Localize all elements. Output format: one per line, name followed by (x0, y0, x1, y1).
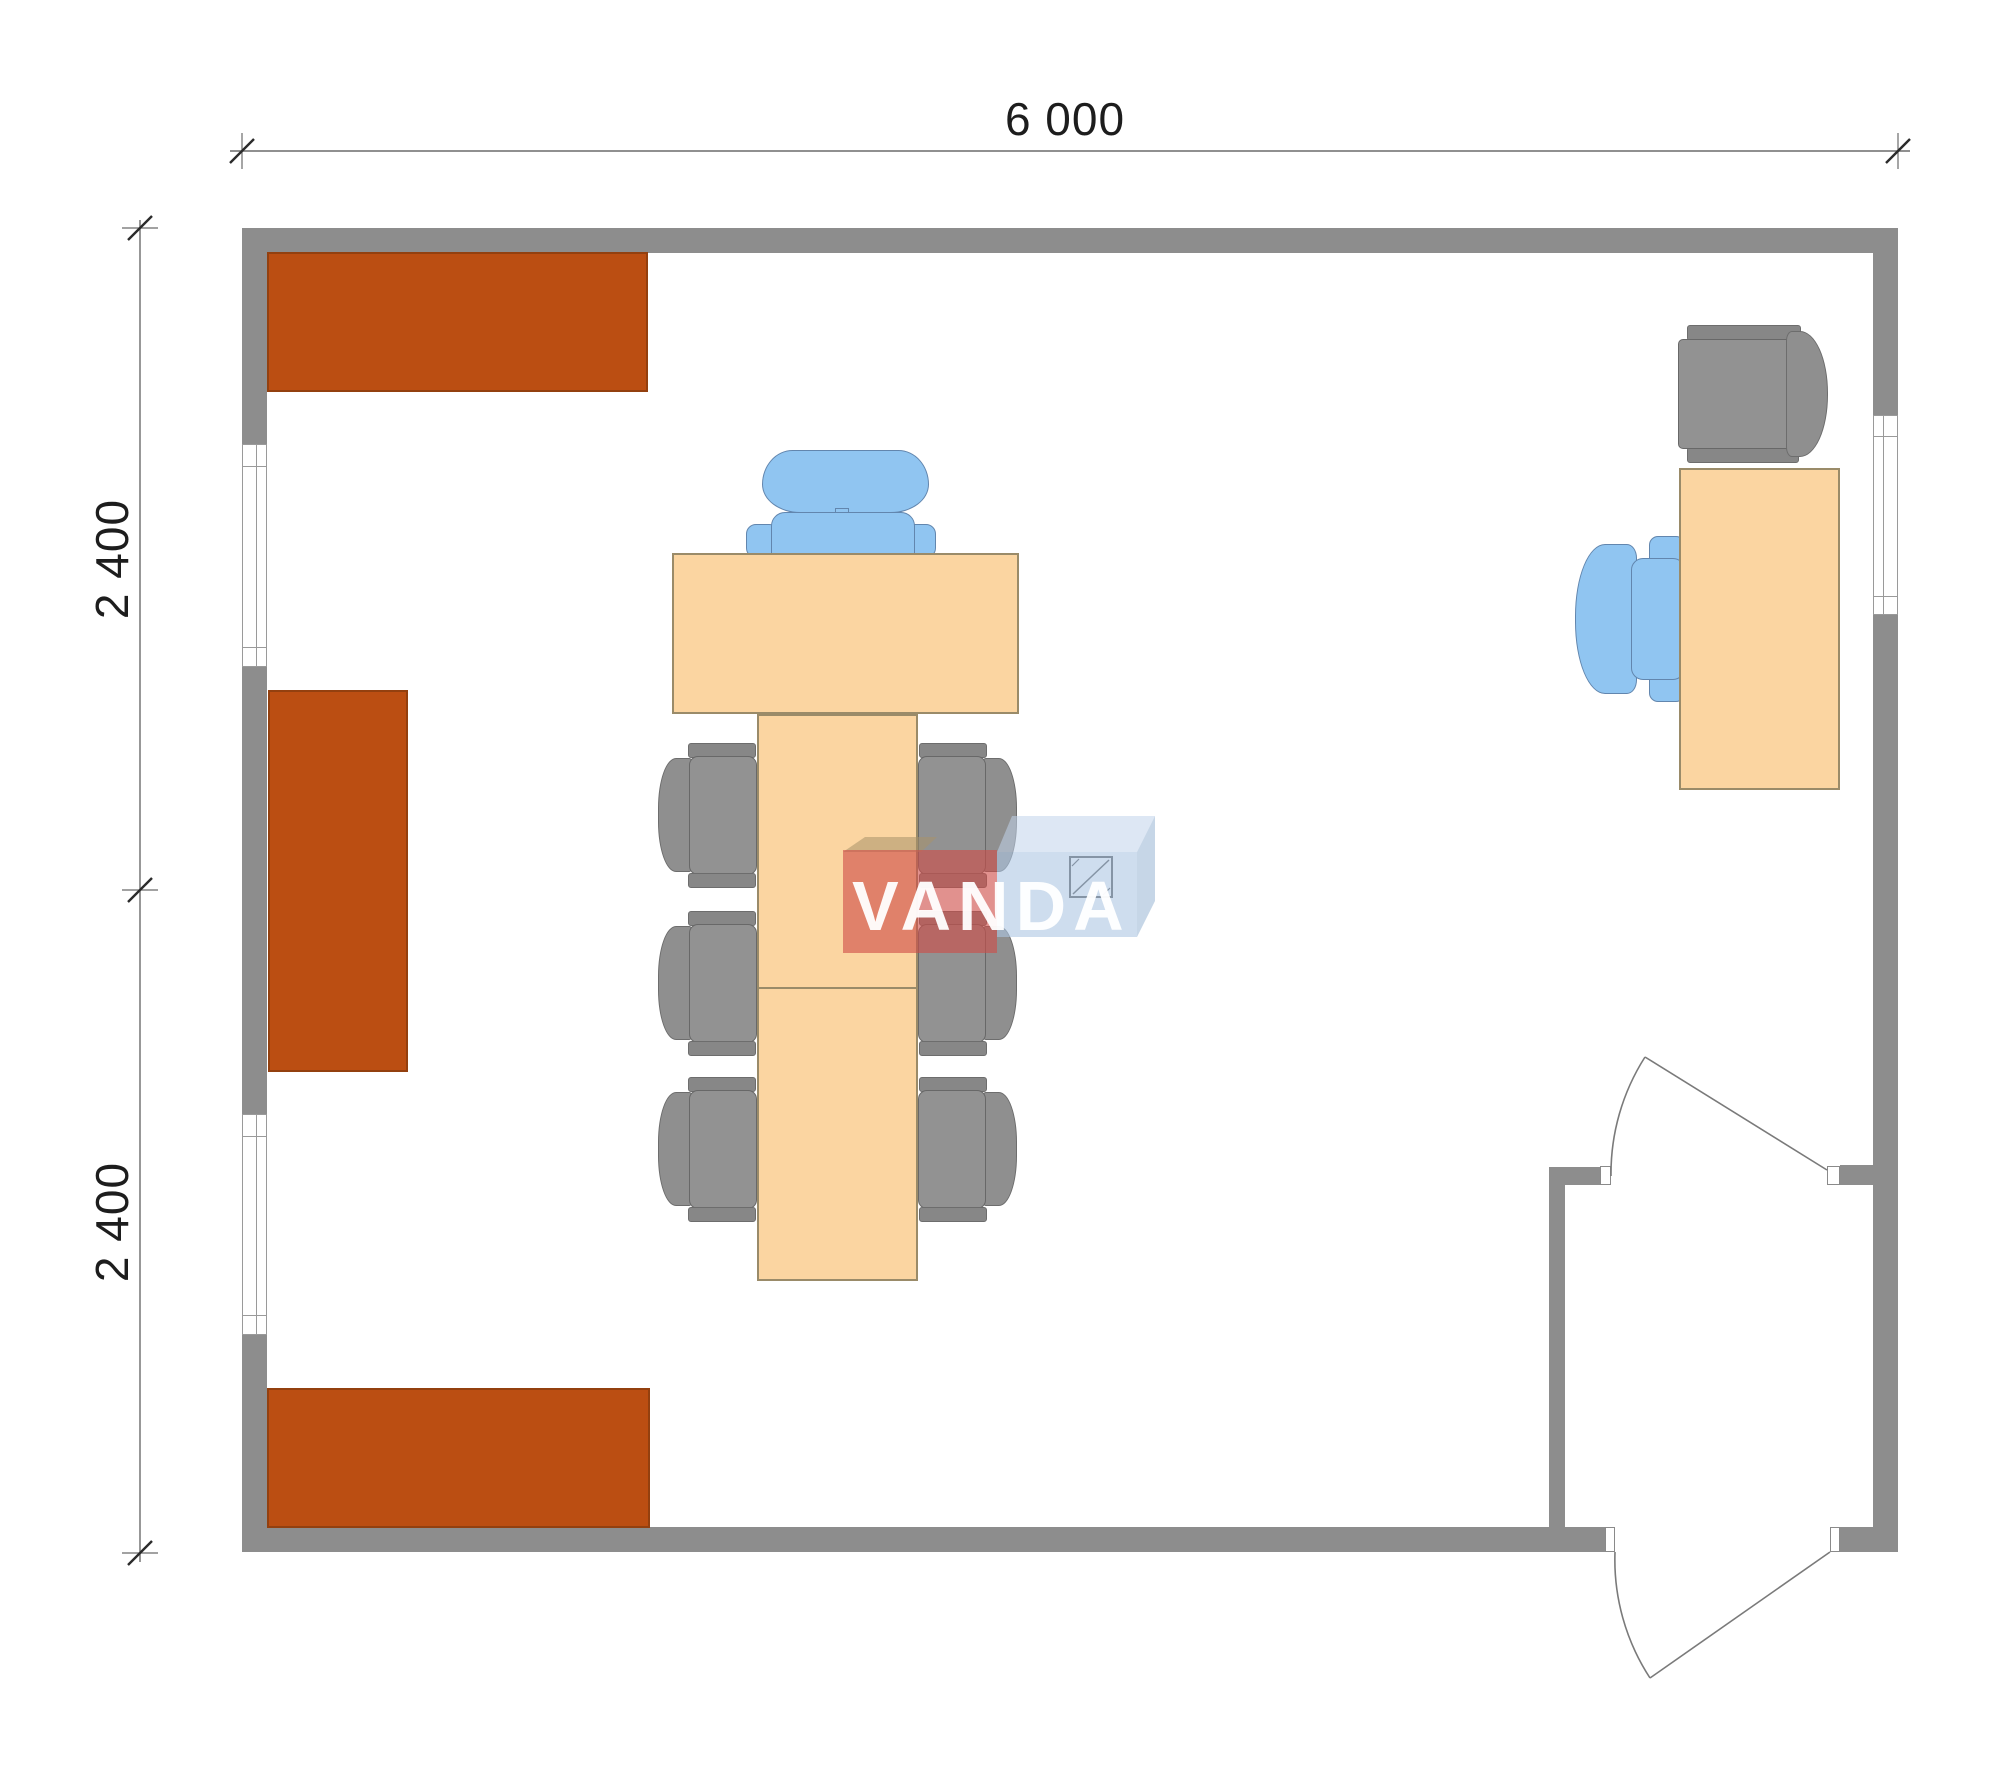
window-glass-line (256, 445, 257, 666)
conference-head-table (672, 553, 1019, 714)
floor-plan-canvas: 6 000 2 400 2 400 (0, 0, 2000, 1773)
window-frame-tick (243, 1315, 266, 1316)
window-frame-tick (243, 466, 266, 467)
window-left-upper (242, 444, 267, 667)
conference-chair (918, 743, 1017, 888)
executive-chair-backrest (762, 450, 929, 513)
chair-armrest (919, 873, 987, 888)
vestibule-wall-top-right (1840, 1165, 1873, 1185)
chair-armrest (1687, 447, 1799, 463)
chair-seat (1631, 558, 1685, 680)
wall-left (242, 228, 267, 1552)
conference-chair (658, 911, 757, 1056)
wall-top (242, 228, 1898, 253)
chair-backrest (1575, 544, 1637, 694)
window-frame-tick (243, 647, 266, 648)
window-frame-tick (243, 1136, 266, 1137)
chair-seat (689, 1090, 757, 1209)
dimension-line-left (122, 216, 158, 1565)
executive-chair (745, 450, 937, 565)
cabinet-top-left (267, 252, 648, 392)
window-right (1873, 415, 1898, 615)
door-jamb (1600, 1166, 1611, 1185)
door-jamb (1830, 1527, 1840, 1552)
ceiling-lamp-icon (1069, 856, 1113, 898)
window-glass-line (1883, 416, 1884, 614)
door-exterior (1615, 1552, 1830, 1678)
desk (1679, 468, 1840, 790)
lounge-chair (1678, 325, 1828, 465)
door-interior (1611, 1057, 1827, 1176)
door-jamb (1827, 1166, 1840, 1185)
conference-chair (658, 1077, 757, 1222)
window-glass-line (256, 1115, 257, 1334)
window-left-lower (242, 1114, 267, 1335)
chair-seat (689, 924, 757, 1043)
dimension-height-upper-label: 2 400 (85, 499, 139, 619)
chair-backrest (981, 758, 1017, 872)
chair-seat (689, 756, 757, 875)
door-jamb (1605, 1527, 1615, 1552)
wall-bottom-right (1840, 1527, 1898, 1552)
chair-backrest (981, 1092, 1017, 1206)
conference-long-table (757, 714, 918, 1281)
cabinet-bottom-left (267, 1388, 650, 1528)
chair-seat (918, 924, 986, 1043)
dimension-width-label: 6 000 (1005, 92, 1125, 146)
chair-armrest (688, 1207, 756, 1222)
window-frame-tick (1874, 436, 1897, 437)
chair-armrest (688, 1041, 756, 1056)
table-seam (759, 987, 916, 989)
dimension-height-lower-label: 2 400 (85, 1162, 139, 1282)
window-frame-tick (1874, 596, 1897, 597)
chair-seat (918, 1090, 986, 1209)
chair-armrest (919, 1041, 987, 1056)
chair-seat (918, 756, 986, 875)
chair-backrest (1786, 331, 1828, 457)
conference-chair (658, 743, 757, 888)
office-chair (1575, 536, 1687, 702)
wall-bottom-main (242, 1527, 1605, 1552)
chair-armrest (688, 873, 756, 888)
chair-backrest (981, 926, 1017, 1040)
conference-chair (918, 1077, 1017, 1222)
chair-seat (1678, 339, 1791, 449)
conference-chair (918, 911, 1017, 1056)
chair-armrest (919, 1207, 987, 1222)
vestibule-wall-left (1549, 1185, 1565, 1527)
cabinet-middle-left (268, 690, 408, 1072)
